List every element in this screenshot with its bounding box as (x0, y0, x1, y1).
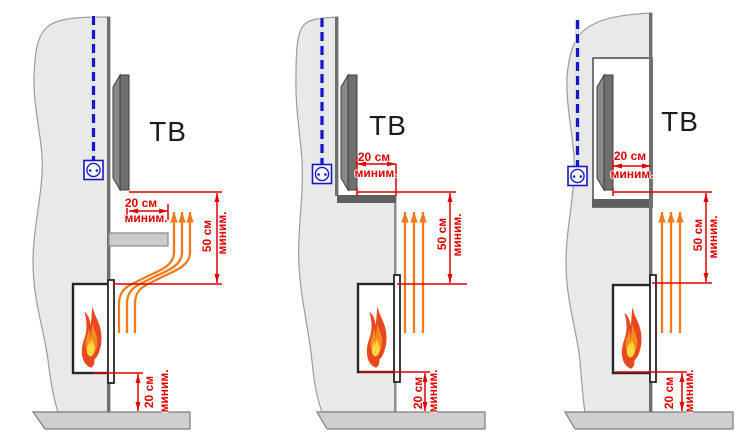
tv-side-view (113, 75, 129, 190)
outlet-icon (313, 165, 332, 184)
dim-20cm-horizontal-qualifier: миним. (354, 167, 397, 179)
dim-50cm-qualifier: миним. (216, 211, 228, 254)
ledge-edge (337, 195, 396, 203)
dim-20cm-bottom-value: 20 см (412, 377, 424, 409)
dim-50cm-qualifier: миним. (451, 213, 463, 256)
dim-20cm-bottom-qualifier: миним. (158, 369, 170, 412)
tv-above-fireplace-diagram: ТВ 20 см миним. 50 см миним. 20 см миним… (0, 0, 750, 447)
floor-slab (33, 412, 190, 429)
fireplace-glass (394, 275, 400, 382)
dim-20cm-bottom-qualifier: миним. (427, 369, 439, 412)
fireplace (73, 280, 114, 383)
dim-50cm-value: 50 см (436, 218, 448, 250)
fireplace-glass (108, 280, 114, 383)
dim-20cm-horizontal-qualifier: миним. (124, 212, 167, 224)
dim-50cm-value: 50 см (201, 220, 213, 252)
mantel-shelf (109, 233, 168, 246)
dim-20cm-horizontal-value: 20 см (358, 151, 390, 163)
fireplace (358, 275, 400, 382)
outlet-icon (84, 161, 103, 180)
diagram-graphics (0, 0, 750, 447)
tv-label: ТВ (369, 110, 407, 142)
fireplace (613, 275, 656, 382)
dim-50cm-value: 50 см (692, 219, 704, 251)
dim-20cm-horizontal-value: 20 см (614, 150, 646, 162)
dim-20cm-bottom-value: 20 см (143, 376, 155, 408)
dim-20cm-horizontal-qualifier: миним. (610, 168, 653, 180)
dim-50cm-qualifier: миним. (707, 215, 719, 258)
tv-label: ТВ (149, 116, 187, 148)
dim-20cm-bottom-value: 20 см (663, 377, 675, 409)
heat-flow-arrows (662, 212, 680, 333)
dim-20cm-horizontal-value: 20 см (125, 197, 157, 209)
heat-flow-arrows (405, 212, 423, 333)
outlet-icon (568, 167, 587, 186)
fireplace-glass (650, 275, 656, 382)
floor-slab (565, 412, 733, 429)
niche-sill-edge (592, 199, 652, 207)
tv-label: ТВ (661, 106, 699, 138)
floor-slab (317, 412, 485, 429)
dim-20cm-bottom-qualifier: миним. (683, 369, 695, 412)
heat-flow-arrows (119, 212, 190, 333)
